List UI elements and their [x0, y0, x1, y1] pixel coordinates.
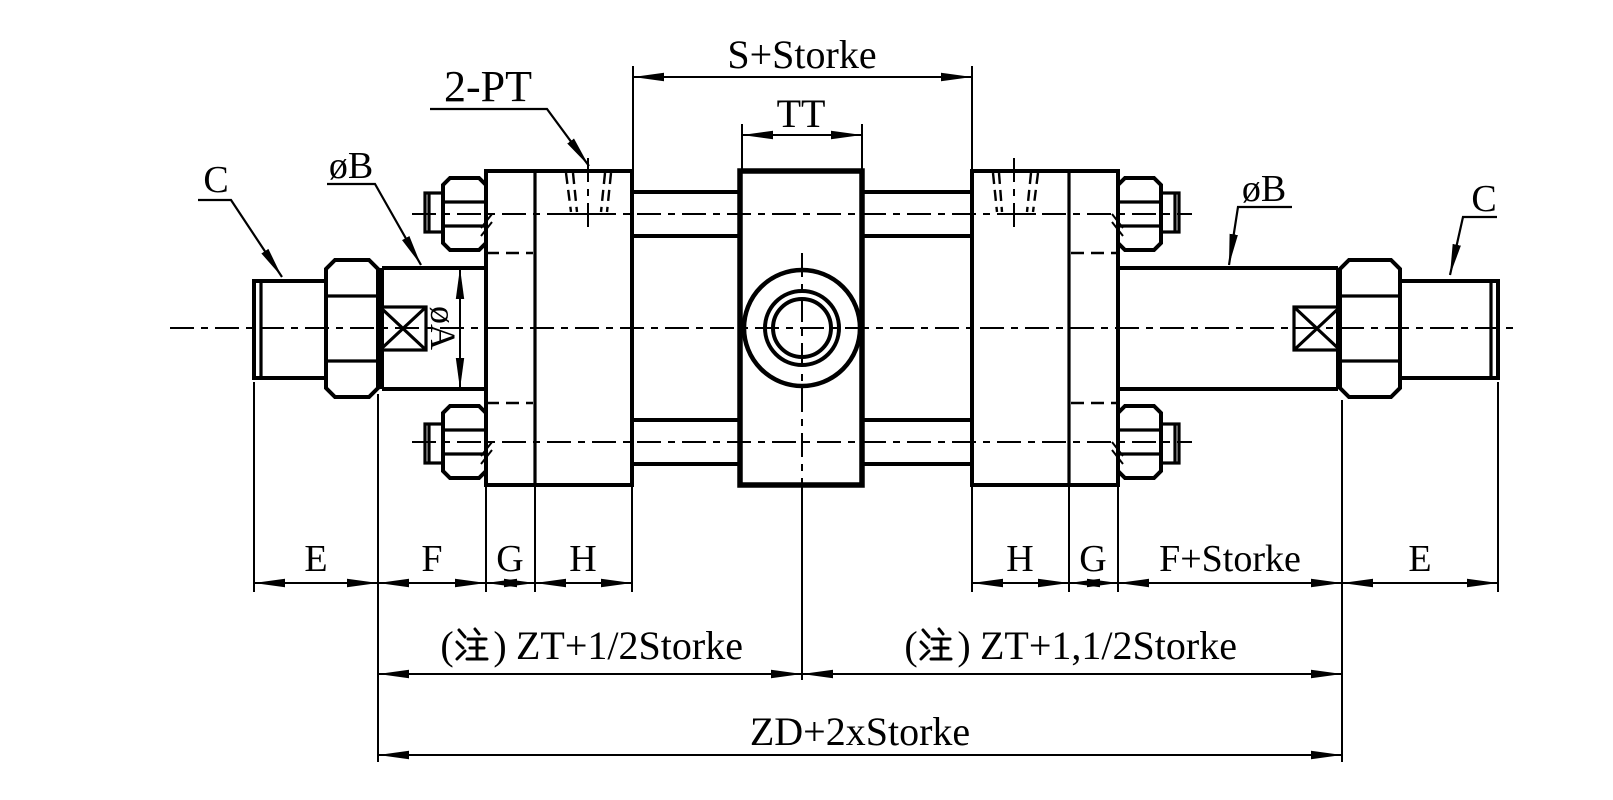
- right-port-symbol: [993, 173, 1038, 214]
- label-s-plus-stroke: S+Storke: [727, 32, 876, 77]
- label-2pt: 2-PT: [444, 62, 532, 111]
- label-f-plus-stroke: F+Storke: [1159, 538, 1301, 580]
- zt-left-text: ZT+1/2Storke: [516, 623, 743, 668]
- zt-right-paren-open: (: [904, 623, 917, 668]
- leader-c-right: [1450, 217, 1497, 275]
- zhu-note-glyph: [457, 629, 487, 659]
- label-zt-right: ( ) ZT+1,1/2Storke: [904, 623, 1237, 668]
- label-h-left: H: [569, 538, 596, 580]
- label-e-left: E: [304, 538, 327, 580]
- right-thread-end: [1400, 281, 1498, 378]
- zhu-note-glyph: [921, 629, 951, 659]
- label-g-right: G: [1079, 538, 1106, 580]
- leader-ob-right: [1229, 207, 1292, 265]
- left-thread-end: [254, 281, 326, 378]
- label-oa: øA: [423, 306, 463, 350]
- zt-left-paren-close: ): [493, 623, 506, 668]
- zt-right-paren-close: ): [957, 623, 970, 668]
- dimensions: S+Storke TT E F G H H G F+Storke E ( ) Z…: [254, 32, 1498, 755]
- label-c-right: C: [1471, 178, 1496, 220]
- leader-c-left: [198, 200, 282, 277]
- label-zd-total: ZD+2xStorke: [750, 709, 970, 754]
- cylinder-drawing: S+Storke TT E F G H H G F+Storke E ( ) Z…: [0, 0, 1613, 800]
- zt-right-text: ZT+1,1/2Storke: [980, 623, 1237, 668]
- label-g-left: G: [496, 538, 523, 580]
- zt-left-paren-open: (: [440, 623, 453, 668]
- label-h-right: H: [1006, 538, 1033, 580]
- label-ob-right: øB: [1242, 168, 1286, 210]
- label-zt-left: ( ) ZT+1/2Storke: [440, 623, 743, 668]
- leader-ob-left: [327, 184, 421, 265]
- label-tt: TT: [777, 91, 826, 136]
- label-c-left: C: [203, 159, 228, 201]
- label-e-right: E: [1408, 538, 1431, 580]
- leader-2pt: [430, 109, 589, 166]
- right-port-taper-lines: [993, 173, 1038, 212]
- drawing-canvas: S+Storke TT E F G H H G F+Storke E ( ) Z…: [0, 0, 1613, 800]
- label-f-left: F: [421, 538, 442, 580]
- label-ob-left: øB: [329, 145, 373, 187]
